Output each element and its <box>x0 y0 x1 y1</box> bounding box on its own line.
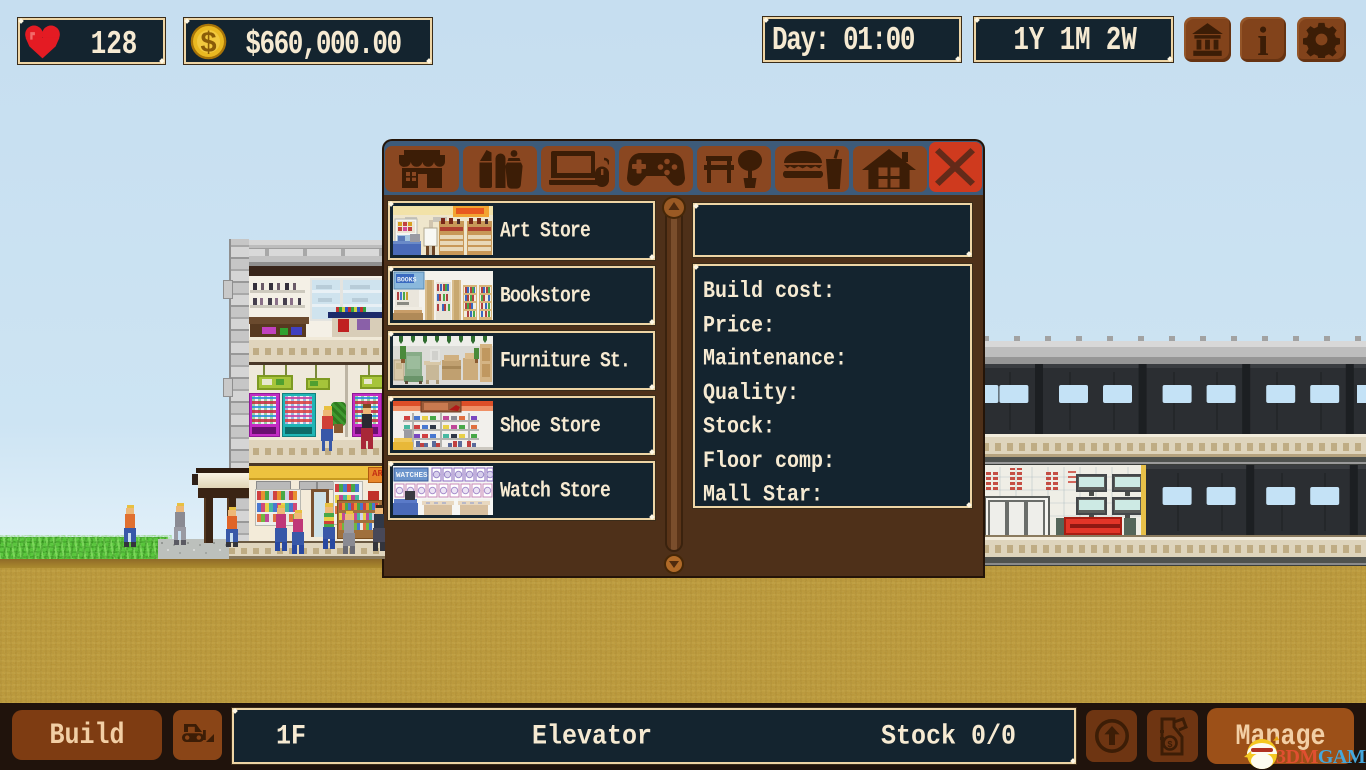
svg-text:WATCHES: WATCHES <box>396 472 428 480</box>
svg-text:$: $ <box>1167 740 1173 750</box>
svg-text:$: $ <box>200 28 217 60</box>
svg-text:BOOKS: BOOKS <box>397 277 417 284</box>
